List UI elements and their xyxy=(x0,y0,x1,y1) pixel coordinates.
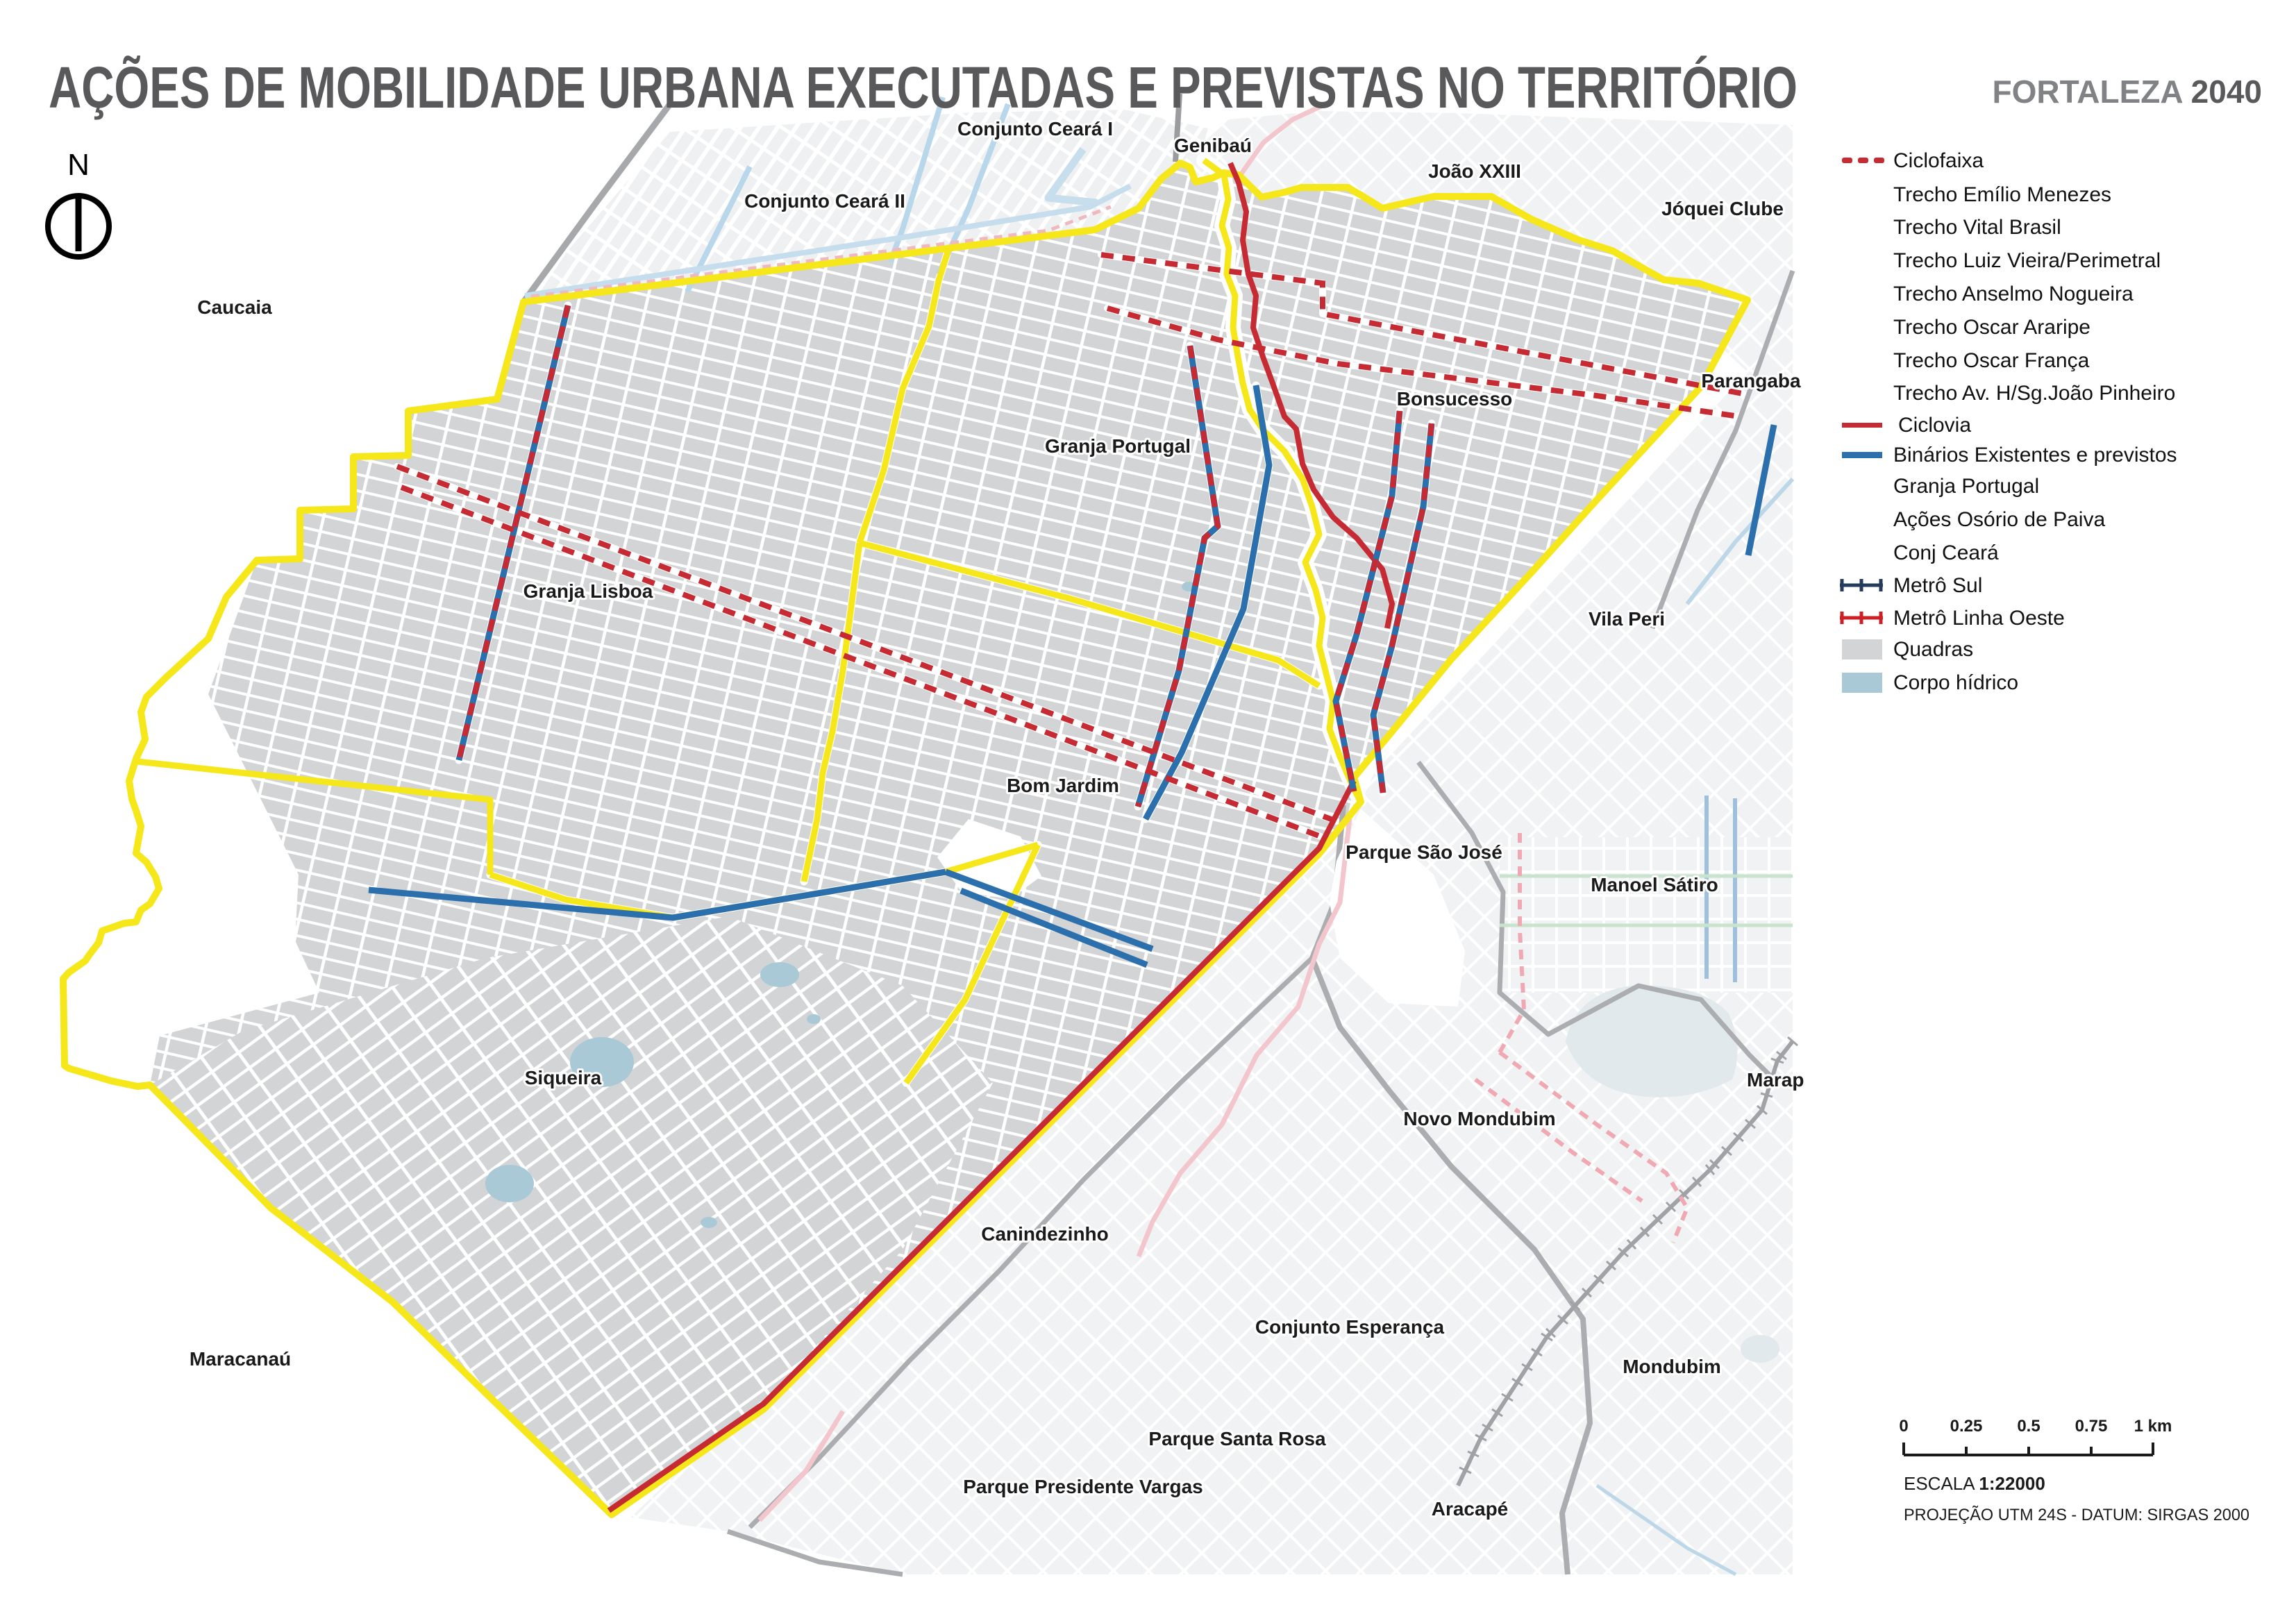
svg-text:Metrô Linha Oeste: Metrô Linha Oeste xyxy=(1893,607,2065,630)
svg-text:Siqueira: Siqueira xyxy=(525,1067,602,1088)
svg-text:Mondubim: Mondubim xyxy=(1623,1356,1721,1377)
svg-text:Conjunto Ceará I: Conjunto Ceará I xyxy=(957,118,1113,140)
svg-text:Trecho Emílio Menezes: Trecho Emílio Menezes xyxy=(1893,183,2111,206)
svg-text:Conjunto Ceará II: Conjunto Ceará II xyxy=(744,190,905,212)
svg-text:Ações Osório de Paiva: Ações Osório de Paiva xyxy=(1893,508,2105,531)
svg-text:0.25: 0.25 xyxy=(1950,1417,1983,1436)
svg-text:1 km: 1 km xyxy=(2134,1417,2172,1436)
svg-text:Trecho Av. H/Sg.João Pinheiro: Trecho Av. H/Sg.João Pinheiro xyxy=(1893,382,2175,405)
svg-text:Aracapé: Aracapé xyxy=(1432,1498,1509,1520)
svg-text:Metrô Sul: Metrô Sul xyxy=(1893,574,1982,597)
svg-text:FORTALEZA 2040: FORTALEZA 2040 xyxy=(1992,74,2262,110)
svg-text:0.75: 0.75 xyxy=(2075,1417,2108,1436)
svg-text:Trecho Vital Brasil: Trecho Vital Brasil xyxy=(1893,216,2061,239)
svg-text:Parque Presidente Vargas: Parque Presidente Vargas xyxy=(963,1476,1203,1497)
svg-text:Marap: Marap xyxy=(1747,1069,1804,1091)
svg-text:Trecho Anselmo Nogueira: Trecho Anselmo Nogueira xyxy=(1893,283,2134,305)
svg-text:Canindezinho: Canindezinho xyxy=(981,1223,1109,1245)
svg-text:Vila Peri: Vila Peri xyxy=(1589,608,1665,630)
svg-text:Jóquei Clube: Jóquei Clube xyxy=(1661,198,1784,219)
svg-text:Binários Existentes e previsto: Binários Existentes e previstos xyxy=(1893,444,2177,466)
svg-text:Conjunto Esperança: Conjunto Esperança xyxy=(1255,1316,1445,1338)
svg-text:Granja Lisboa: Granja Lisboa xyxy=(523,580,653,602)
svg-text:Parque Santa Rosa: Parque Santa Rosa xyxy=(1148,1428,1326,1449)
svg-text:Manoel Sátiro: Manoel Sátiro xyxy=(1591,874,1718,895)
svg-text:Parque São José: Parque São José xyxy=(1346,841,1502,863)
svg-text:AÇÕES DE MOBILIDADE URBANA EXE: AÇÕES DE MOBILIDADE URBANA EXECUTADAS E … xyxy=(49,55,1798,120)
svg-text:Maracanaú: Maracanaú xyxy=(190,1348,291,1370)
svg-text:0.5: 0.5 xyxy=(2017,1417,2040,1436)
svg-text:0: 0 xyxy=(1899,1417,1908,1436)
svg-text:Bom Jardim: Bom Jardim xyxy=(1007,775,1119,796)
svg-text:Novo Mondubim: Novo Mondubim xyxy=(1403,1108,1555,1129)
svg-text:Trecho Oscar Araripe: Trecho Oscar Araripe xyxy=(1893,316,2090,339)
svg-text:N: N xyxy=(67,148,90,182)
svg-text:Corpo hídrico: Corpo hídrico xyxy=(1893,671,2018,694)
svg-text:Trecho Luiz Vieira/Perimetral: Trecho Luiz Vieira/Perimetral xyxy=(1893,249,2161,272)
svg-text:Caucaia: Caucaia xyxy=(197,296,272,318)
svg-text:Bonsucesso: Bonsucesso xyxy=(1397,388,1513,410)
svg-text:Granja Portugal: Granja Portugal xyxy=(1045,435,1191,457)
svg-text:Quadras: Quadras xyxy=(1893,638,1973,661)
svg-text:Parangaba: Parangaba xyxy=(1701,370,1801,392)
svg-text:PROJEÇÃO UTM 24S - DATUM: SIRG: PROJEÇÃO UTM 24S - DATUM: SIRGAS 2000 xyxy=(1904,1506,2249,1524)
svg-text:João XXIII: João XXIII xyxy=(1428,160,1521,182)
svg-text:Ciclofaixa: Ciclofaixa xyxy=(1893,149,1984,172)
svg-text:Granja Portugal: Granja Portugal xyxy=(1893,475,2039,498)
svg-text:Ciclovia: Ciclovia xyxy=(1898,414,1971,437)
svg-text:Conj Ceará: Conj Ceará xyxy=(1893,541,1999,564)
svg-text:Genibaú: Genibaú xyxy=(1174,135,1252,156)
svg-text:ESCALA 1:22000: ESCALA 1:22000 xyxy=(1904,1473,2045,1494)
svg-text:Trecho Oscar França: Trecho Oscar França xyxy=(1893,349,2090,372)
